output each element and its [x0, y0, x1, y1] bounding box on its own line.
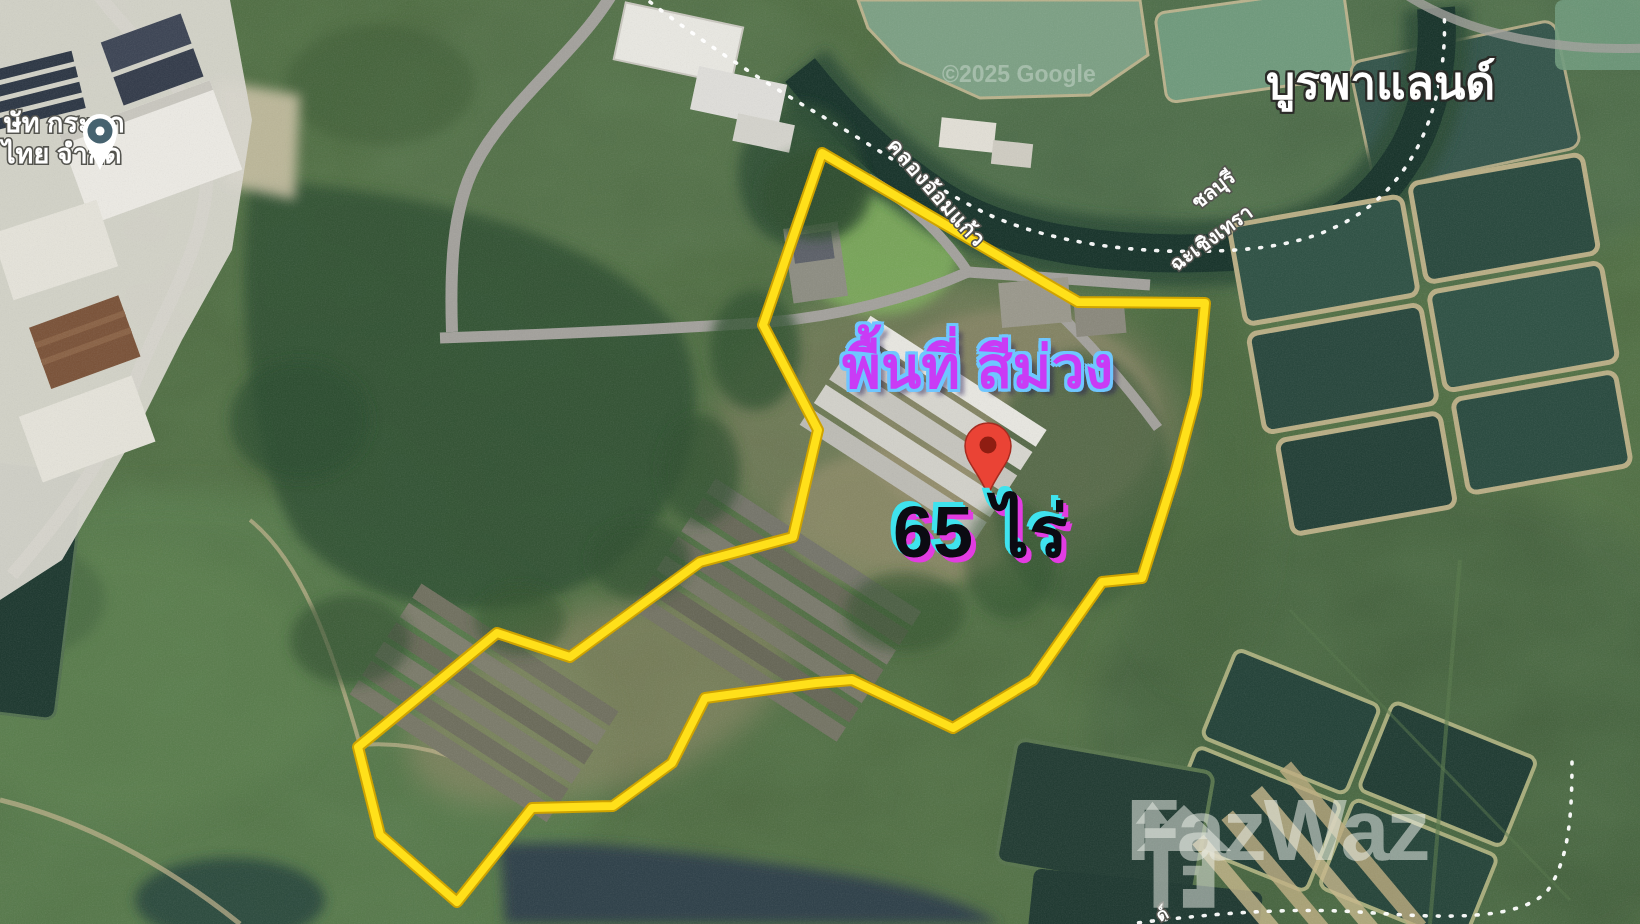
house-logo-icon	[1122, 786, 1246, 912]
imagery-credit-watermark: ©2025 Google	[942, 61, 1096, 87]
satellite-map-canvas[interactable]: ษัท กระจก ไทย จำกัด คลองอ้อมแก้ว ชลบุรี …	[0, 0, 1640, 924]
fazwaz-watermark: FazWaz	[1122, 786, 1427, 876]
area-size-text: 65 ไร่	[893, 474, 1068, 589]
project-name-text: บูรพาแลนด์	[1266, 46, 1495, 119]
area-title-text: พื้นที่ สีม่วง	[842, 320, 1113, 414]
